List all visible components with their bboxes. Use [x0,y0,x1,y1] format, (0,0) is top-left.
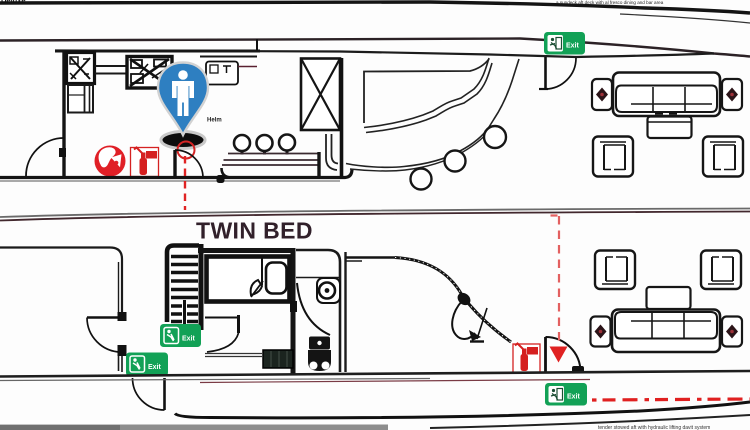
svg-text:Exit: Exit [182,336,196,343]
svg-text:Exit: Exit [567,394,581,401]
svg-text:Exit: Exit [566,43,580,50]
svg-text:Exit: Exit [148,364,162,371]
svg-text:tender stowed aft with hydraul: tender stowed aft with hydraulic lifting… [598,425,710,430]
svg-text:a sundeck aft deck with al fre: a sundeck aft deck with al fresco dining… [556,0,664,5]
svg-text:Helm: Helm [207,118,222,124]
svg-text:TWIN BED: TWIN BED [196,218,313,244]
svg-text:Deluxe: Deluxe [1,0,26,5]
